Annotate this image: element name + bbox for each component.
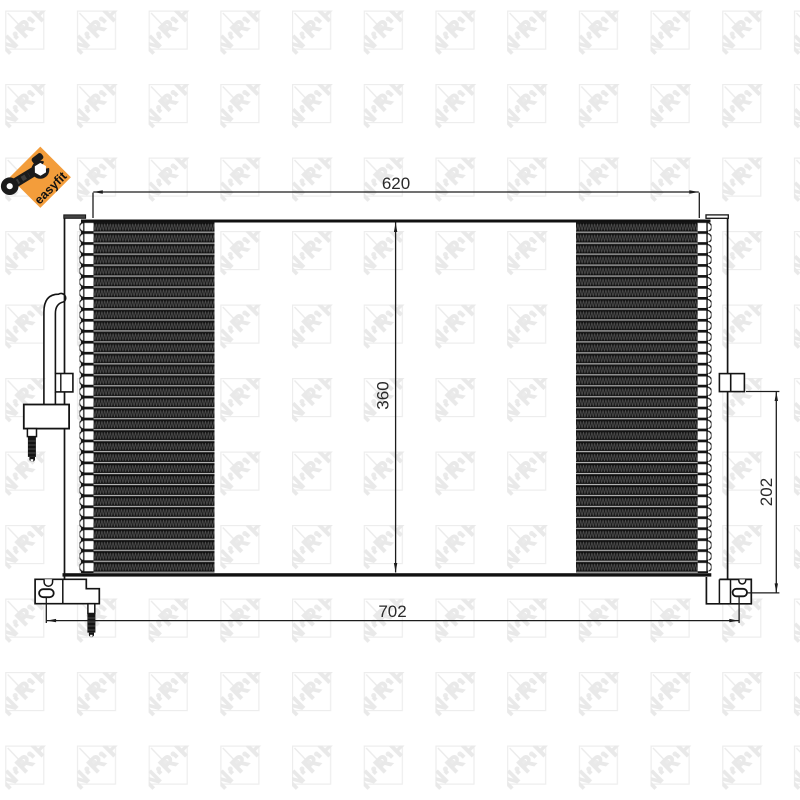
svg-text:202: 202: [757, 478, 776, 506]
svg-text:620: 620: [382, 174, 410, 193]
svg-text:360: 360: [374, 381, 393, 409]
svg-text:702: 702: [378, 602, 406, 621]
